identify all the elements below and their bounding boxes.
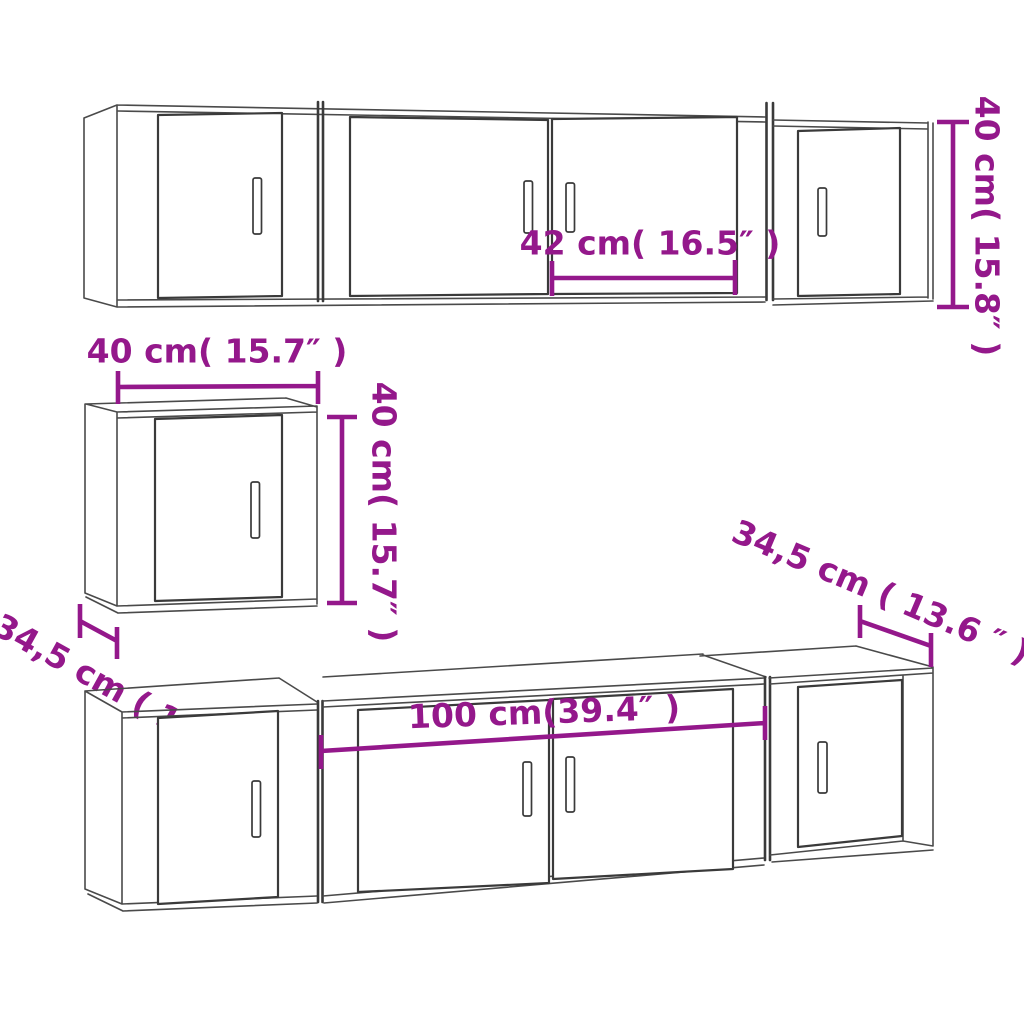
furniture-dimension-diagram: 42 cm( 16.5″ ) 40 cm( 15.8″ ) 40 cm( 15.… [0,0,1024,1024]
dimension-label-wall-cabinet-height: 40 cm( 15.7″ ) [365,382,404,643]
diagram-canvas: 42 cm( 16.5″ ) 40 cm( 15.8″ ) 40 cm( 15.… [0,0,1024,1024]
cabinet-door [350,117,548,296]
door-handle [252,781,261,837]
bottom-right-cabinet [700,646,933,862]
door-handle [251,482,260,538]
top-cabinet-row [84,102,933,307]
cabinet-joint-line [318,102,323,301]
cabinet-joint-line [765,677,770,860]
cabinet-door [158,113,282,298]
dimension-label-top-door-width: 42 cm( 16.5″ ) [520,224,781,263]
door-handle [818,742,827,793]
door-handle [818,188,827,236]
dimension-wall-cabinet-width: 40 cm( 15.7″ ) [87,332,348,405]
wall-cabinet [85,398,317,613]
cabinet-door [552,117,737,294]
dimension-wall-cabinet-height: 40 cm( 15.7″ ) [327,382,404,643]
top-wide-cabinet [350,117,737,296]
cabinet-joint-line [318,701,323,902]
door-handle [566,757,575,812]
dimension-top-cabinet-height: 40 cm( 15.8″ ) [937,96,1007,357]
cabinet-door [798,128,900,296]
door-handle [523,762,532,816]
dimension-line [327,417,357,603]
cabinet-door [155,415,282,601]
cabinet-door [798,680,902,847]
dimension-label-wall-cabinet-width: 40 cm( 15.7″ ) [87,332,348,371]
top-right-cabinet [773,120,933,305]
dimension-line [937,122,969,307]
cabinet-joint-line [767,103,774,300]
dimension-label-bottom-cabinet-depth: 34,5 cm ( 13.6 ″ ) [726,512,1024,673]
door-handle [253,178,262,234]
bottom-cabinet-row [85,646,933,911]
dimension-label-top-cabinet-height: 40 cm( 15.8″ ) [968,96,1007,357]
dimension-bottom-cabinet-depth: 34,5 cm ( 13.6 ″ ) [726,512,1024,673]
bottom-wide-cabinet [323,654,766,903]
